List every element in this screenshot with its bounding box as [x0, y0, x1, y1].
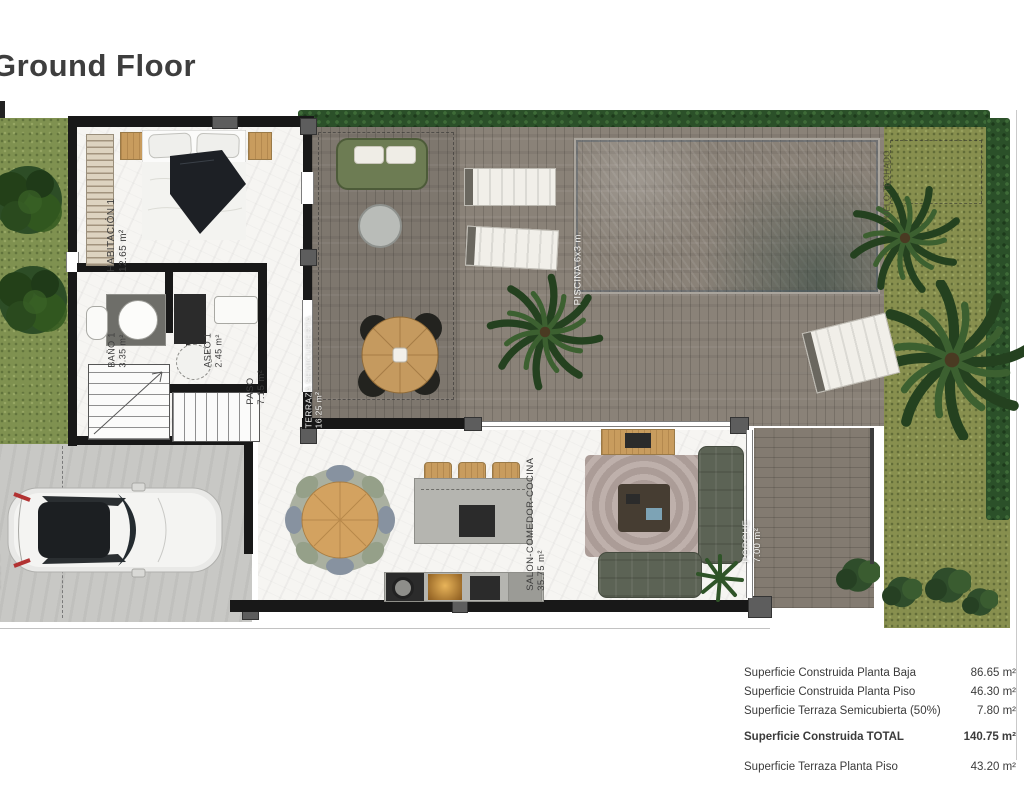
room-name: HABITACIÓN 1 — [106, 198, 118, 272]
table-item — [646, 508, 662, 520]
car-top-view — [6, 482, 226, 578]
room-name: BAÑO 1 — [106, 332, 117, 367]
room-label-paso: PASO7.15 m² — [245, 370, 268, 405]
room-label-porche: PORCHE7.00 m² — [741, 520, 764, 563]
summary-value: 46.30 m² — [971, 683, 1016, 702]
sofa-cushion — [386, 146, 416, 164]
kitchen-island — [414, 478, 532, 544]
summary-label: Superficie Construida TOTAL — [744, 728, 904, 747]
pool-label: PISCINA 6x3 m. — [573, 231, 584, 305]
bush-icon — [882, 572, 922, 612]
nightstand — [248, 132, 272, 160]
summary-row: Superficie Terraza Planta Piso 43.20 m² — [744, 758, 1016, 777]
summary-value: 7.80 m² — [977, 702, 1016, 721]
pillar — [300, 118, 317, 135]
room-area: 7.00 m² — [753, 520, 764, 563]
stair-direction-arrow — [88, 364, 170, 440]
toilet — [86, 306, 108, 340]
wood-cabinet — [428, 574, 462, 600]
summary-row: Superficie Terraza Semicubierta (50%) 7.… — [744, 702, 1016, 721]
room-area: 12.65 m² — [118, 198, 130, 272]
deck-palm-icon — [485, 272, 605, 392]
surface-summary-table: Superficie Construida Planta Baja 86.65 … — [744, 664, 1016, 777]
table-item — [626, 494, 640, 504]
summary-value: 86.65 m² — [971, 664, 1016, 683]
double-bed — [142, 130, 246, 240]
cropped-edge-artifact — [0, 101, 5, 118]
sun-lounger — [464, 168, 556, 206]
bush-icon — [962, 584, 998, 620]
page-title: Ground Floor — [0, 48, 196, 84]
wall — [244, 436, 253, 554]
pillar — [464, 417, 482, 431]
room-label-bano1: BAÑO 13.35 m² — [106, 332, 128, 367]
summary-value: 140.75 m² — [964, 728, 1016, 747]
round-dining-set — [285, 465, 395, 575]
shower-unit — [174, 294, 206, 344]
aseo-toilet — [214, 296, 258, 324]
floor-plan-page: Ground Floor — [0, 0, 1024, 800]
room-area: 3.35 m² — [117, 332, 128, 367]
island-dashed-line — [421, 489, 525, 490]
room-name: TERRAZA SEMICUBIERTA — [304, 316, 314, 429]
room-label-salon: SALON-COMEDOR-COCINA35.75 m² — [525, 458, 548, 591]
coffee-table — [618, 484, 670, 532]
wall — [302, 418, 464, 429]
round-side-table — [358, 204, 402, 248]
wall — [68, 116, 314, 127]
room-name: SALON-COMEDOR-COCINA — [525, 458, 536, 591]
pillar — [212, 116, 238, 129]
room-label-habitacion1: HABITACIÓN 112.65 m² — [106, 198, 130, 272]
room-name: PASO — [245, 370, 256, 405]
sliding-glass-door — [482, 421, 732, 427]
sidewalk-line — [0, 628, 770, 629]
room-area: 13.10 m² — [0, 475, 2, 589]
nightstand — [120, 132, 144, 160]
top-hedge — [298, 110, 990, 127]
garden-tree-icon — [0, 258, 75, 342]
summary-label: Superficie Construida Planta Baja — [744, 664, 916, 683]
cooktop — [459, 505, 495, 537]
sofa — [598, 552, 702, 598]
sofa-chaise — [698, 446, 744, 564]
pillar — [300, 249, 317, 266]
summary-value: 43.20 m² — [971, 758, 1016, 777]
sun-lounger — [465, 226, 559, 271]
pillar — [300, 427, 317, 444]
wall — [165, 263, 173, 333]
pool-name: PISCINA 6x3 m. — [573, 231, 584, 305]
garden-note-label: VUELO TECHADO — [882, 150, 892, 224]
room-area: 2.45 m² — [213, 333, 224, 368]
outdoor-sofa — [336, 138, 428, 190]
wall — [68, 116, 77, 446]
room-area: 7.15 m² — [257, 370, 268, 405]
sink-unit — [470, 576, 500, 600]
oven-door-glass — [392, 577, 414, 599]
room-name: PORCHE — [741, 520, 752, 563]
summary-label: Superficie Terraza Semicubierta (50%) — [744, 702, 941, 721]
summary-row: Superficie Construida Planta Baja 86.65 … — [744, 664, 1016, 683]
sofa-cushion — [354, 146, 384, 164]
summary-label: Superficie Construida Planta Piso — [744, 683, 915, 702]
window — [301, 172, 314, 204]
tv — [625, 433, 651, 448]
swimming-pool — [576, 140, 878, 292]
summary-label: Superficie Terraza Planta Piso — [744, 758, 898, 777]
pillar — [748, 596, 772, 618]
room-name: ASEO 1 — [202, 333, 213, 368]
room-label-garaje: GARAJE SEMICUBIERTO13.10 m² — [0, 475, 2, 589]
summary-row: Superficie Construida Planta Piso 46.30 … — [744, 683, 1016, 702]
room-label-aseo1: ASEO 12.45 m² — [202, 333, 224, 368]
room-area: 35.75 m² — [537, 458, 548, 591]
outdoor-dining-set — [345, 300, 455, 410]
garden-tree-icon — [0, 158, 70, 242]
porch-edge-wall — [870, 428, 874, 564]
room-area: 16.25 m² — [314, 316, 324, 429]
summary-row-total: Superficie Construida TOTAL 140.75 m² — [744, 728, 1016, 747]
garden-note: VUELO TECHADO — [882, 150, 892, 224]
room-label-terraza: TERRAZA SEMICUBIERTA16.25 m² — [304, 316, 324, 429]
